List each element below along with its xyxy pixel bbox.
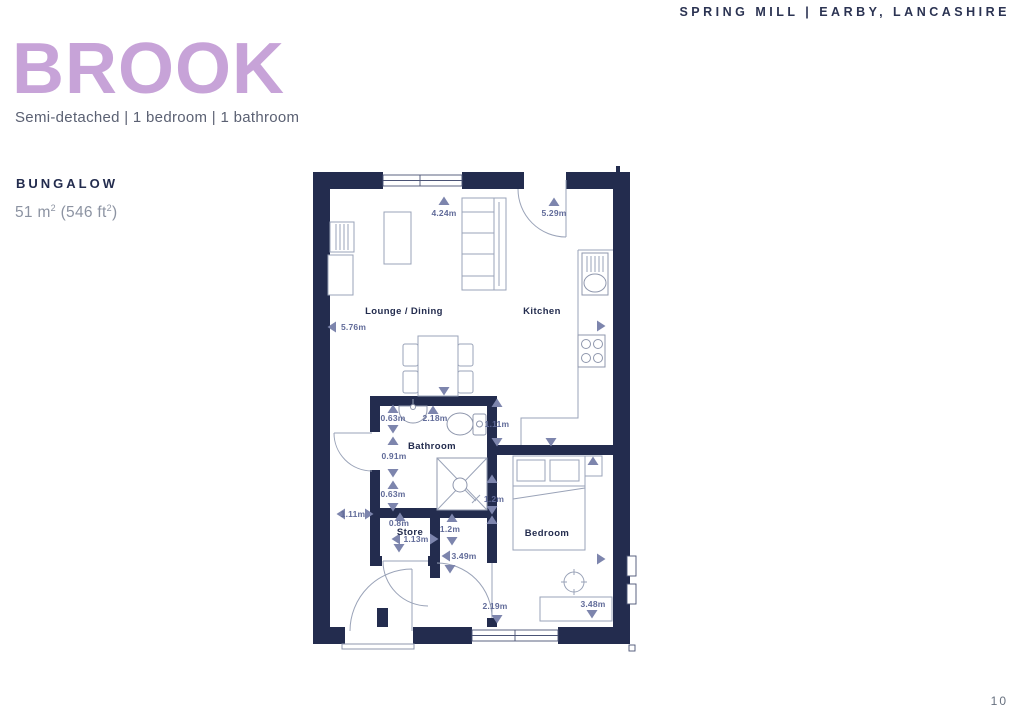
room-label-bedroom: Bedroom bbox=[525, 528, 570, 539]
dim-hall-recess: 1.2m bbox=[440, 524, 460, 534]
house-type-subtitle: Semi-detached | 1 bedroom | 1 bathroom bbox=[15, 109, 299, 126]
dim-bedroom-recess: 1.2m bbox=[484, 494, 504, 504]
floor-area: 51 m2 (546 ft2) bbox=[15, 203, 117, 222]
room-label-kitchen: Kitchen bbox=[523, 306, 561, 317]
dim-entry-width: 2.19m bbox=[482, 601, 507, 611]
house-type-title: BROOK bbox=[12, 28, 285, 110]
dim-bathroom-seg-mid: 0.91m bbox=[381, 451, 406, 461]
floorplan: 4.24m 5.29m 5.76m 0.63m 2.18m 1.11m 0.91… bbox=[300, 165, 650, 660]
entry-threshold bbox=[342, 644, 414, 649]
store-door-arc bbox=[383, 561, 428, 606]
dining-set bbox=[403, 336, 473, 396]
dim-bedroom-width: 3.48m bbox=[580, 599, 605, 609]
room-label-store: Store bbox=[397, 527, 423, 538]
toilet-icon bbox=[447, 413, 486, 435]
brochure-page: SPRING MILL | EARBY, LANCASHIRE BROOK Se… bbox=[0, 0, 1020, 716]
shower-icon bbox=[437, 458, 487, 510]
dim-hall-width: 1.11m bbox=[341, 509, 366, 519]
sofa bbox=[462, 198, 506, 290]
coffee-table bbox=[384, 212, 411, 264]
dim-open-plan-width: 5.76m bbox=[341, 322, 366, 332]
room-label-lounge-dining: Lounge / Dining bbox=[365, 306, 443, 317]
floor-label: BUNGALOW bbox=[16, 176, 118, 191]
hob-icon bbox=[578, 335, 605, 367]
development-location-header: SPRING MILL | EARBY, LANCASHIRE bbox=[679, 5, 1010, 19]
window-icon-bottom bbox=[472, 630, 558, 641]
stool-icon bbox=[561, 569, 587, 595]
sink-icon bbox=[582, 253, 608, 295]
dim-kitchen-depth: 5.29m bbox=[541, 208, 566, 218]
bathroom-door-arc bbox=[334, 433, 372, 471]
dim-hall-length: 3.49m bbox=[451, 551, 476, 561]
tv-unit bbox=[330, 222, 354, 252]
dim-bathroom-width: 2.18m bbox=[422, 413, 447, 423]
dim-lounge-depth: 4.24m bbox=[431, 208, 456, 218]
page-number: 10 bbox=[991, 694, 1008, 708]
dim-kitchen-passage: 1.11m bbox=[485, 419, 510, 429]
dim-bathroom-seg-bottom: 0.63m bbox=[380, 489, 405, 499]
dim-bathroom-seg-top: 0.63m bbox=[380, 413, 405, 423]
cabinet bbox=[328, 255, 353, 295]
room-label-bathroom: Bathroom bbox=[408, 441, 456, 452]
window-icon-top bbox=[383, 175, 462, 186]
